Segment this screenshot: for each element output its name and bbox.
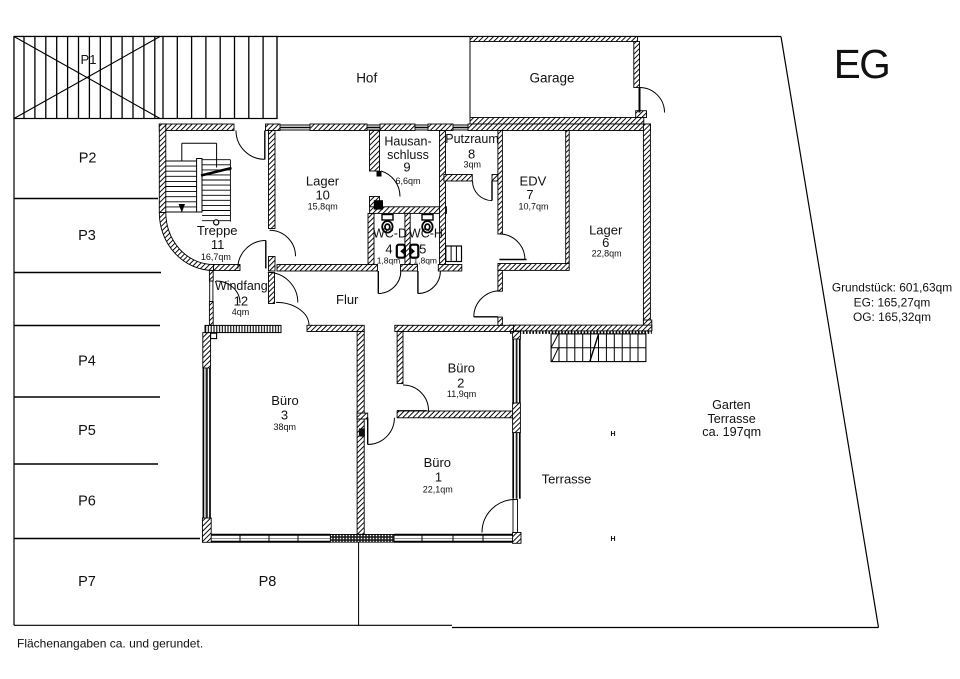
svg-text:10: 10 [315,188,329,203]
svg-text:1,8qm: 1,8qm [377,255,401,265]
svg-text:P5: P5 [78,423,96,439]
svg-text:Büro: Büro [448,361,475,376]
svg-text:5: 5 [419,242,426,257]
svg-text:Putzraum: Putzraum [445,132,499,146]
svg-text:1,8qm: 1,8qm [413,255,437,265]
svg-text:4qm: 4qm [232,307,250,317]
svg-text:11: 11 [211,237,225,252]
svg-text:WC-H: WC-H [409,227,443,241]
svg-text:Terrasse: Terrasse [707,412,755,426]
svg-text:3qm: 3qm [464,160,482,170]
svg-text:P6: P6 [78,494,96,510]
svg-text:EDV: EDV [520,173,547,188]
svg-text:Hof: Hof [356,71,377,86]
svg-text:Terrasse: Terrasse [542,471,592,486]
svg-text:Grundstück: 601,63qm: Grundstück: 601,63qm [832,281,952,295]
svg-text:Garage: Garage [529,71,574,86]
svg-text:EG: EG [834,41,890,87]
svg-text:10,7qm: 10,7qm [518,201,548,211]
svg-text:Flächenangaben ca. und gerunde: Flächenangaben ca. und gerundet. [17,637,203,651]
svg-text:1: 1 [435,470,442,485]
svg-text:Garten: Garten [712,398,751,412]
svg-text:Hausan-: Hausan- [384,134,431,148]
svg-text:3: 3 [281,408,288,423]
svg-text:38qm: 38qm [273,422,296,432]
svg-text:Lager: Lager [306,173,340,188]
svg-text:P8: P8 [259,574,277,590]
svg-text:4: 4 [385,242,392,257]
svg-text:H: H [610,431,615,438]
svg-text:22,1qm: 22,1qm [423,484,453,494]
svg-text:OG: 165,32qm: OG: 165,32qm [853,310,931,324]
svg-text:H: H [610,536,615,543]
svg-text:6,6qm: 6,6qm [395,176,420,186]
svg-text:Büro: Büro [424,455,451,470]
svg-text:Flur: Flur [336,292,359,307]
svg-text:P1: P1 [81,52,97,67]
svg-text:15,8qm: 15,8qm [308,202,338,212]
svg-text:Windfang: Windfang [215,279,268,293]
svg-text:P2: P2 [79,151,97,167]
svg-text:P7: P7 [78,574,96,590]
svg-text:ca. 197qm: ca. 197qm [702,425,761,439]
svg-text:22,8qm: 22,8qm [592,248,622,258]
svg-text:11,9qm: 11,9qm [447,389,476,399]
svg-text:EG: 165,27qm: EG: 165,27qm [854,295,931,309]
svg-text:P4: P4 [78,354,96,370]
svg-text:7: 7 [526,187,533,202]
svg-text:9: 9 [403,160,410,175]
svg-text:WC-D: WC-D [373,227,407,241]
svg-text:P3: P3 [78,228,96,244]
svg-text:Büro: Büro [271,393,298,408]
svg-text:16,7qm: 16,7qm [201,252,231,262]
